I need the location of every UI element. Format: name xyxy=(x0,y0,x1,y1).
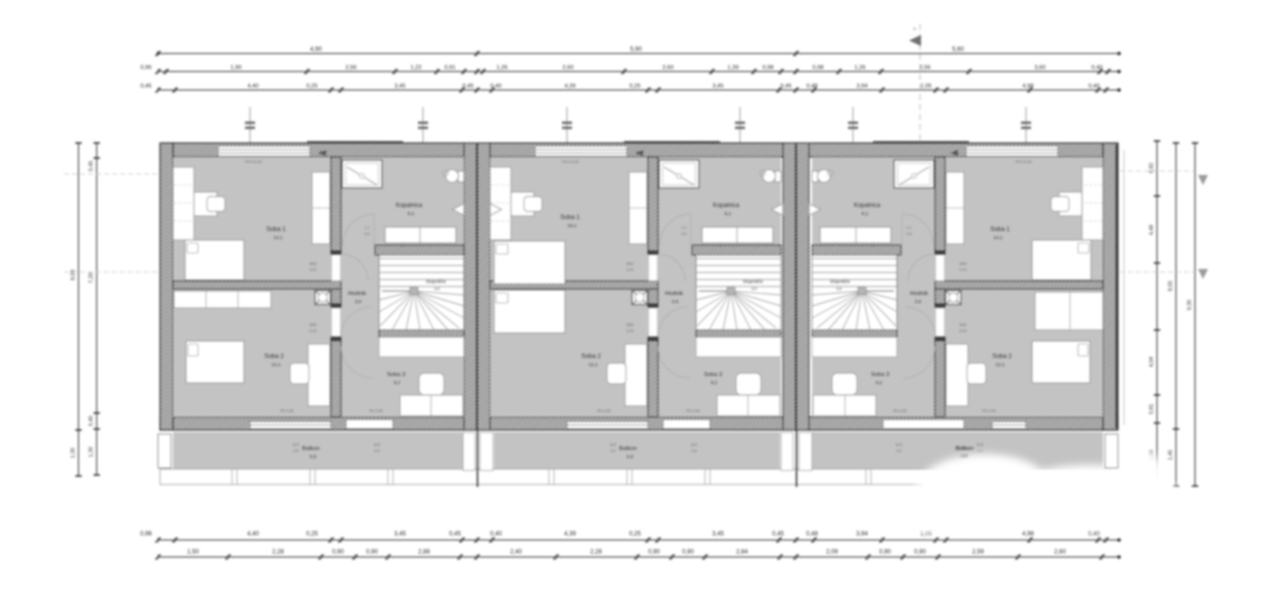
svg-text:B.Š: B.Š xyxy=(896,442,903,447)
svg-text:2,40: 2,40 xyxy=(510,550,522,556)
svg-text:0,9: 0,9 xyxy=(293,449,298,453)
svg-text:2,59: 2,59 xyxy=(972,550,984,556)
svg-text:0,25: 0,25 xyxy=(306,83,317,89)
svg-text:8,05: 8,05 xyxy=(1168,281,1174,292)
svg-text:5,90: 5,90 xyxy=(630,47,642,53)
svg-text:Soba 1: Soba 1 xyxy=(560,214,580,221)
svg-text:12,1: 12,1 xyxy=(271,362,281,368)
svg-text:Balkon: Balkon xyxy=(302,446,320,452)
svg-text:7,20: 7,20 xyxy=(89,273,95,284)
svg-text:2,09: 2,09 xyxy=(826,550,838,556)
svg-text:0,45: 0,45 xyxy=(89,161,95,172)
svg-text:12,1: 12,1 xyxy=(995,362,1005,368)
svg-text:2,60: 2,60 xyxy=(1054,550,1066,556)
svg-text:0,96: 0,96 xyxy=(140,532,152,538)
svg-text:12,1: 12,1 xyxy=(588,362,598,368)
svg-text:0,90: 0,90 xyxy=(879,550,891,556)
svg-text:0,48: 0,48 xyxy=(806,532,818,538)
svg-text:2,84: 2,84 xyxy=(736,550,748,556)
svg-text:Balkon: Balkon xyxy=(955,446,971,452)
svg-text:0,45: 0,45 xyxy=(780,83,791,89)
svg-text:Stopnišče: Stopnišče xyxy=(426,279,447,284)
svg-text:2,01: 2,01 xyxy=(626,268,633,272)
svg-text:0,90: 0,90 xyxy=(648,550,660,556)
svg-text:3,45: 3,45 xyxy=(394,83,405,89)
svg-text:0,9: 0,9 xyxy=(374,449,379,453)
svg-text:Balkon: Balkon xyxy=(619,446,637,452)
svg-text:2,56: 2,56 xyxy=(345,65,356,71)
svg-text:Kopalnica: Kopalnica xyxy=(396,203,423,209)
svg-text:9,30: 9,30 xyxy=(1187,300,1193,311)
svg-text:Kopalnica: Kopalnica xyxy=(854,203,881,209)
svg-text:1,05: 1,05 xyxy=(920,83,931,89)
svg-text:1,7: 1,7 xyxy=(364,226,369,230)
svg-text:1,26: 1,26 xyxy=(496,65,507,71)
svg-text:0,9: 0,9 xyxy=(691,449,696,453)
svg-text:0,9: 0,9 xyxy=(364,232,369,236)
svg-text:0,40: 0,40 xyxy=(490,532,502,538)
svg-text:9,2: 9,2 xyxy=(711,380,718,385)
svg-text:2,60: 2,60 xyxy=(562,65,573,71)
svg-text:Hodnik: Hodnik xyxy=(665,291,683,297)
svg-text:B.Š: B.Š xyxy=(691,442,698,447)
svg-text:1,90: 1,90 xyxy=(230,65,241,71)
svg-text:4,39: 4,39 xyxy=(564,83,575,89)
svg-text:3,9: 3,9 xyxy=(355,299,362,304)
svg-text:0,82: 0,82 xyxy=(1149,163,1155,174)
svg-text:0,40: 0,40 xyxy=(1091,65,1102,71)
svg-text:B05: B05 xyxy=(627,323,634,327)
svg-text:+Pn=0,00: +Pn=0,00 xyxy=(561,159,579,164)
svg-text:6,9: 6,9 xyxy=(962,453,968,458)
svg-text:Pk 0,00: Pk 0,00 xyxy=(280,408,294,413)
svg-text:B.Š: B.Š xyxy=(293,442,300,447)
svg-text:6,1: 6,1 xyxy=(725,211,732,217)
svg-text:Soba 2: Soba 2 xyxy=(264,353,284,360)
svg-text:6,1: 6,1 xyxy=(408,211,415,217)
svg-text:6,9: 6,9 xyxy=(310,454,317,459)
svg-text:0,40: 0,40 xyxy=(1088,83,1099,89)
svg-text:Stopnišče: Stopnišče xyxy=(743,279,764,284)
svg-text:B.Š: B.Š xyxy=(610,442,617,447)
svg-text:4,40: 4,40 xyxy=(247,83,258,89)
svg-text:Stopnišče: Stopnišče xyxy=(830,279,851,284)
svg-text:0,90: 0,90 xyxy=(914,550,926,556)
svg-text:+Pn=0,00: +Pn=0,00 xyxy=(1014,159,1032,164)
svg-text:1,30: 1,30 xyxy=(89,447,95,458)
svg-text:Soba 1: Soba 1 xyxy=(990,226,1010,233)
svg-text:0,98: 0,98 xyxy=(812,65,823,71)
svg-text:3,9: 3,9 xyxy=(915,299,922,304)
svg-text:0,40: 0,40 xyxy=(490,83,501,89)
svg-text:Pk 0,00: Pk 0,00 xyxy=(893,408,907,413)
svg-text:Soba 1: Soba 1 xyxy=(266,226,286,233)
svg-text:2,01: 2,01 xyxy=(309,329,316,333)
svg-text:3,9: 3,9 xyxy=(672,299,679,304)
svg-text:4,48: 4,48 xyxy=(1149,225,1155,236)
svg-text:0,25: 0,25 xyxy=(629,532,641,538)
svg-text:1,05: 1,05 xyxy=(920,532,932,538)
svg-text:Pk 0,00: Pk 0,00 xyxy=(686,408,700,413)
svg-text:4,9: 4,9 xyxy=(836,287,841,291)
svg-text:3,60: 3,60 xyxy=(1034,65,1045,71)
svg-text:Pk 0,00: Pk 0,00 xyxy=(597,408,611,413)
svg-text:16,1: 16,1 xyxy=(567,223,577,229)
svg-text:0,45: 0,45 xyxy=(449,532,461,538)
svg-text:4,98: 4,98 xyxy=(1022,532,1034,538)
svg-text:3,45: 3,45 xyxy=(712,83,723,89)
svg-text:0,25: 0,25 xyxy=(306,532,318,538)
svg-text:14,1: 14,1 xyxy=(993,235,1003,241)
svg-text:0,9: 0,9 xyxy=(896,449,901,453)
svg-text:B05: B05 xyxy=(310,262,317,266)
svg-text:2,01: 2,01 xyxy=(959,329,966,333)
svg-text:3,94: 3,94 xyxy=(856,83,868,89)
svg-text:1,22: 1,22 xyxy=(410,65,421,71)
svg-text:0,45: 0,45 xyxy=(140,83,151,89)
svg-text:0,98: 0,98 xyxy=(762,65,773,71)
svg-text:B05: B05 xyxy=(960,323,967,327)
svg-text:Hodnik: Hodnik xyxy=(348,291,366,297)
svg-text:1,26: 1,26 xyxy=(854,65,865,71)
svg-text:4,9: 4,9 xyxy=(751,287,756,291)
svg-text:0,9: 0,9 xyxy=(681,232,686,236)
svg-text:Soba 3: Soba 3 xyxy=(387,372,405,378)
svg-text:6,9: 6,9 xyxy=(627,454,634,459)
svg-text:1,50: 1,50 xyxy=(187,550,199,556)
svg-text:2,01: 2,01 xyxy=(626,329,633,333)
svg-text:2,56: 2,56 xyxy=(919,65,930,71)
svg-text:4,98: 4,98 xyxy=(1022,83,1033,89)
svg-text:14,1: 14,1 xyxy=(273,235,283,241)
svg-text:0,9: 0,9 xyxy=(610,449,615,453)
svg-text:5,60: 5,60 xyxy=(952,47,964,53)
svg-text:0,90: 0,90 xyxy=(332,550,344,556)
svg-text:B05: B05 xyxy=(310,323,317,327)
svg-text:1,7: 1,7 xyxy=(906,226,911,230)
svg-text:4,39: 4,39 xyxy=(564,532,576,538)
svg-text:Hodnik: Hodnik xyxy=(910,291,928,297)
svg-text:Kopalnica: Kopalnica xyxy=(713,203,740,209)
svg-text:2,01: 2,01 xyxy=(309,268,316,272)
svg-text:4,9: 4,9 xyxy=(434,287,439,291)
svg-text:0,9: 0,9 xyxy=(977,449,982,453)
svg-text:2,28: 2,28 xyxy=(590,550,602,556)
svg-text:0,25: 0,25 xyxy=(629,83,640,89)
svg-text:8,08: 8,08 xyxy=(71,270,77,281)
svg-text:0,40: 0,40 xyxy=(1088,532,1100,538)
svg-text:1,7: 1,7 xyxy=(681,226,686,230)
svg-text:0,81: 0,81 xyxy=(1149,404,1155,415)
svg-text:Soba 3: Soba 3 xyxy=(871,372,889,378)
svg-text:B.Š: B.Š xyxy=(374,442,381,447)
svg-text:0,90: 0,90 xyxy=(366,550,378,556)
svg-text:3,45: 3,45 xyxy=(394,532,406,538)
svg-text:2,60: 2,60 xyxy=(662,65,673,71)
svg-text:B05: B05 xyxy=(627,262,634,266)
svg-text:Soba 2: Soba 2 xyxy=(992,353,1012,360)
svg-text:4,90: 4,90 xyxy=(310,47,322,53)
svg-text:9,2: 9,2 xyxy=(394,380,401,385)
svg-text:9,2: 9,2 xyxy=(876,380,883,385)
svg-text:0,90: 0,90 xyxy=(682,550,694,556)
svg-text:1,30: 1,30 xyxy=(71,448,77,459)
svg-text:B05: B05 xyxy=(960,262,967,266)
svg-text:2,28: 2,28 xyxy=(272,550,284,556)
svg-text:0,45: 0,45 xyxy=(462,83,473,89)
svg-text:3,94: 3,94 xyxy=(856,532,868,538)
svg-text:4,40: 4,40 xyxy=(247,532,259,538)
svg-text:3,45: 3,45 xyxy=(712,532,724,538)
svg-text:0,48: 0,48 xyxy=(806,83,817,89)
svg-text:0,91: 0,91 xyxy=(444,65,455,71)
svg-text:2,88: 2,88 xyxy=(418,550,430,556)
svg-text:0,96: 0,96 xyxy=(140,65,151,71)
svg-text:+Pn=0,00: +Pn=0,00 xyxy=(244,159,262,164)
svg-text:0,9: 0,9 xyxy=(906,232,911,236)
svg-text:B.Š: B.Š xyxy=(977,442,984,447)
svg-text:2,01: 2,01 xyxy=(959,268,966,272)
svg-text:Pk 0,00: Pk 0,00 xyxy=(982,408,996,413)
svg-text:4,04: 4,04 xyxy=(1149,357,1155,368)
svg-text:1,39: 1,39 xyxy=(727,65,738,71)
svg-text:1,45: 1,45 xyxy=(1168,450,1174,461)
svg-text:0,45: 0,45 xyxy=(772,532,784,538)
svg-text:0,40: 0,40 xyxy=(89,416,95,427)
svg-text:6,1: 6,1 xyxy=(862,211,869,217)
svg-text:Soba 3: Soba 3 xyxy=(704,372,722,378)
svg-text:Pk 0,00: Pk 0,00 xyxy=(369,408,383,413)
svg-text:Soba 2: Soba 2 xyxy=(581,353,601,360)
